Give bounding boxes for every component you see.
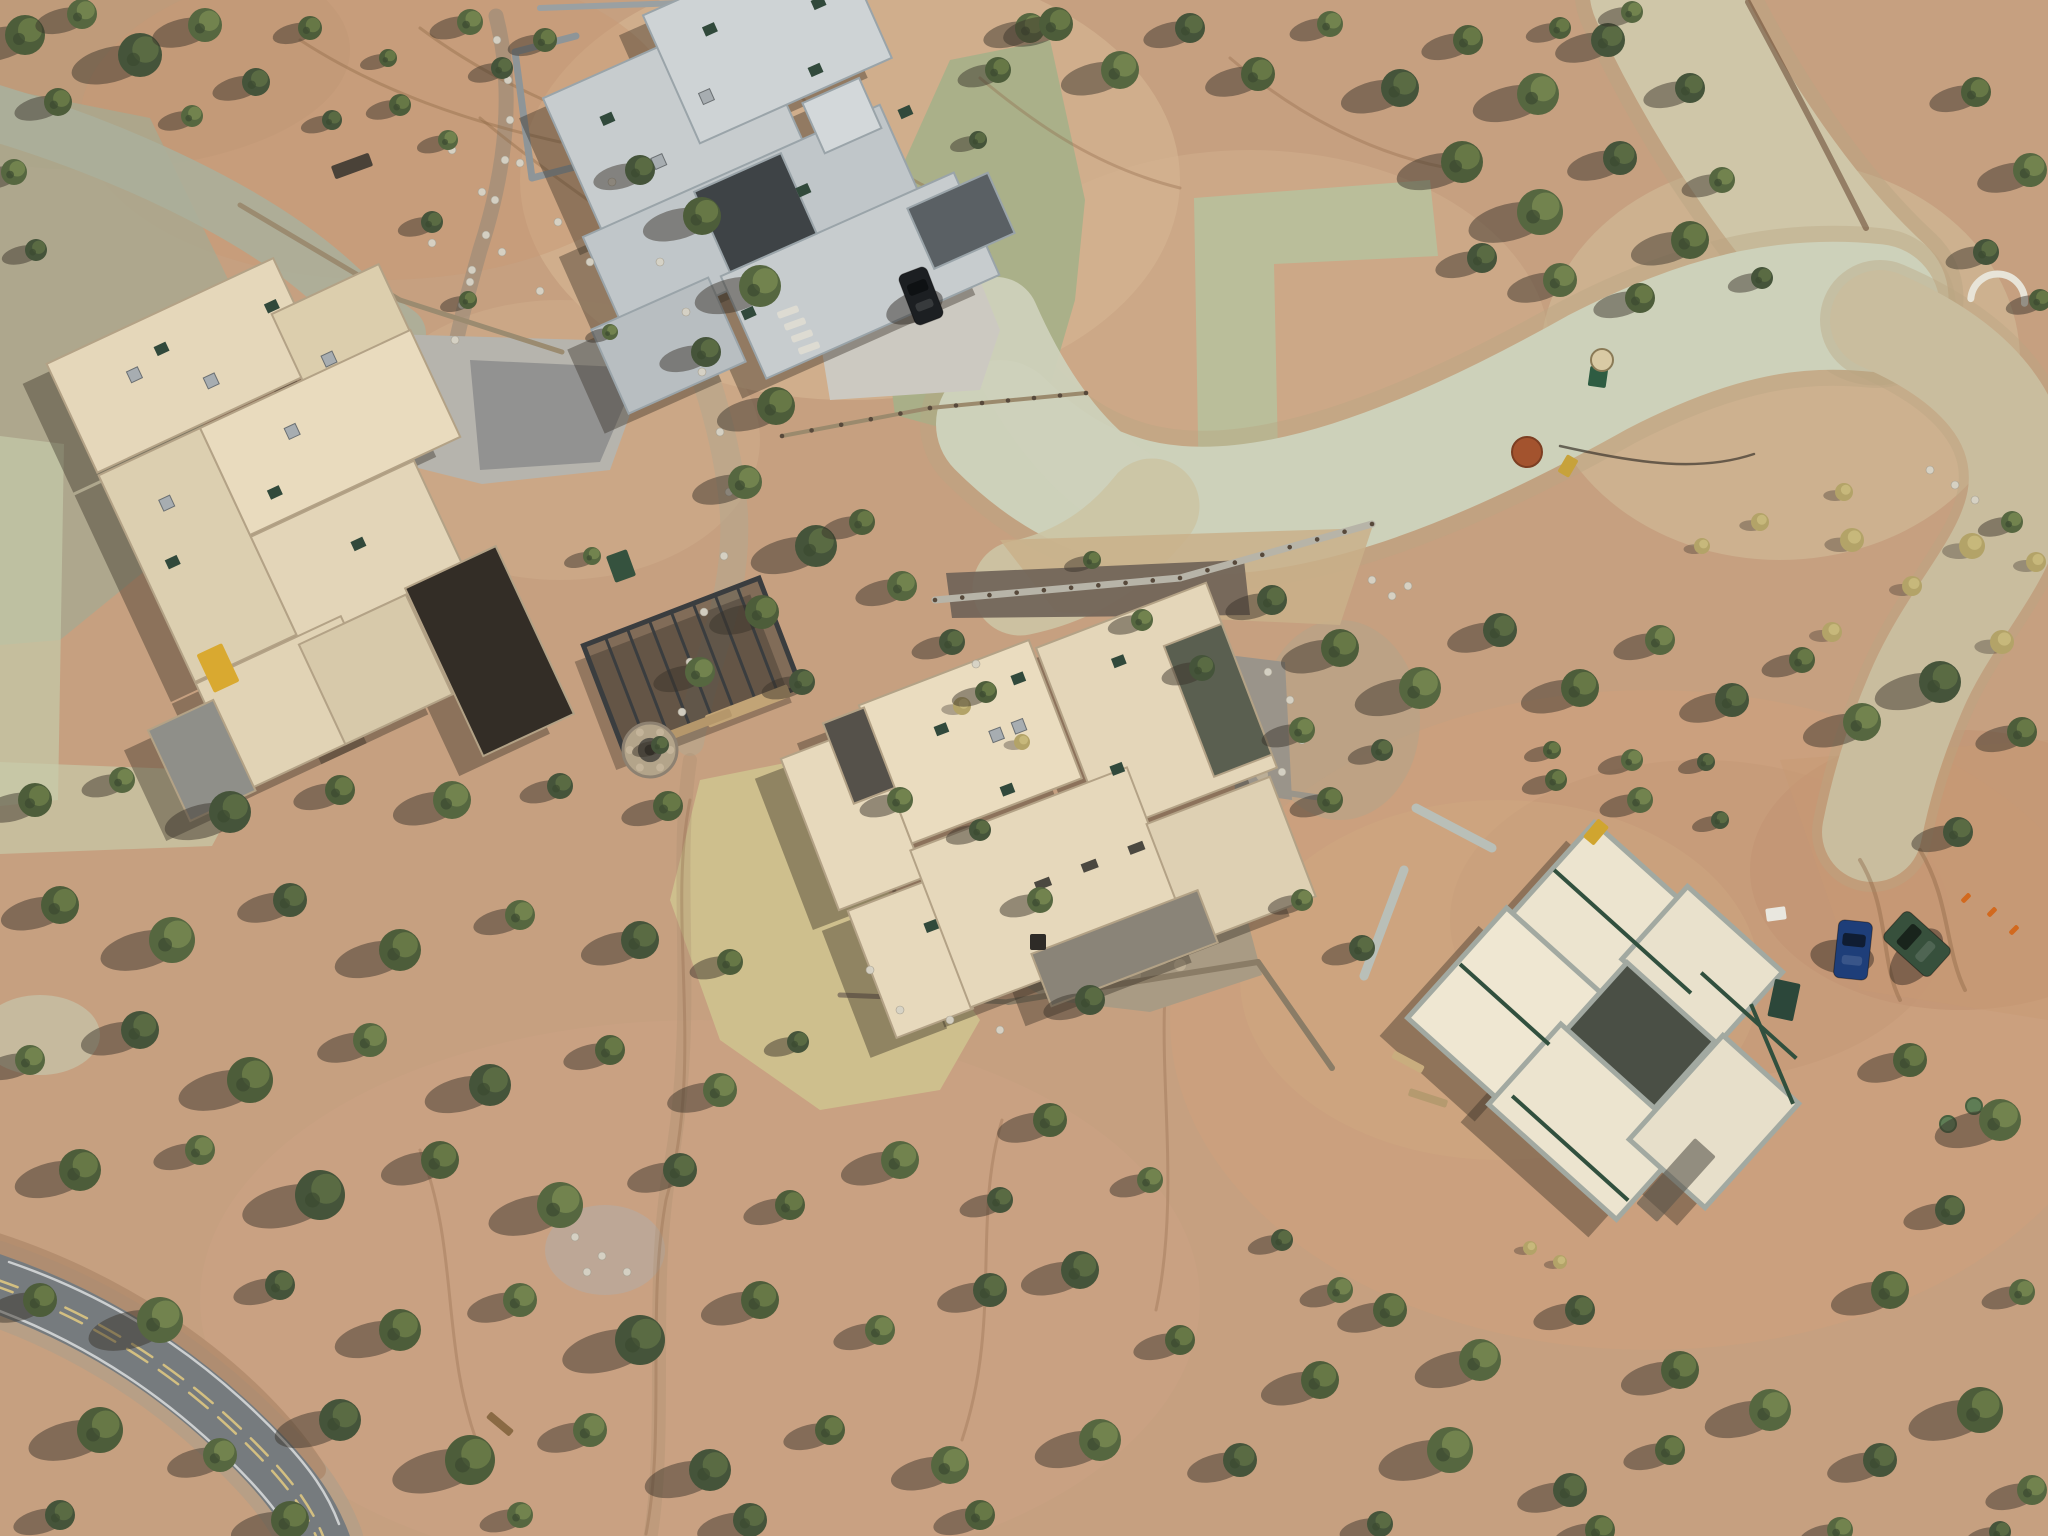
patio-umbrella [1591, 349, 1613, 371]
planter-pot [1030, 934, 1046, 950]
aerial-photograph [0, 0, 2048, 1536]
erosion-fabric-west [0, 436, 64, 806]
construction-sign [1765, 906, 1787, 922]
aerial-photo-canvas [0, 0, 2048, 1536]
round-water-tank [1512, 437, 1542, 467]
